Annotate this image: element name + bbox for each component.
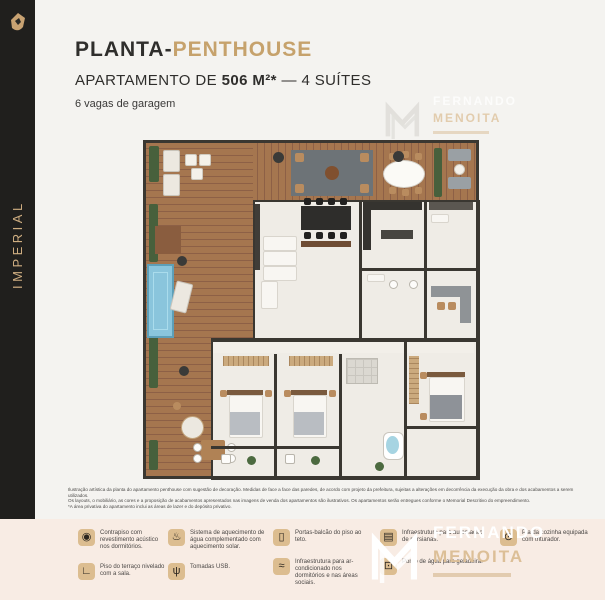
plan-outline	[143, 140, 479, 479]
watermark-name: FERNANDO	[433, 93, 517, 110]
feature-item: ≈ Infraestrutura para ar-condicionado no…	[273, 558, 373, 587]
usb-outlet-icon: ψ	[168, 563, 185, 580]
garage-info: 6 vagas de garagem	[75, 98, 175, 110]
floor-plan	[143, 140, 479, 479]
feature-item: ⊙ Pia da cozinha equipada com triturador…	[500, 529, 600, 546]
feature-text: Infraestrutura para ar-condicionado nos …	[295, 558, 373, 587]
brand-name-vertical: IMPERIAL	[0, 200, 35, 290]
feature-item: ♨ Sistema de aquecimento de água complem…	[168, 529, 270, 551]
feature-text: Contrapiso com revestimento acústico nos…	[100, 529, 166, 551]
level-floor-icon: ∟	[78, 563, 95, 580]
fridge-water-point-icon: ⊡	[380, 558, 397, 575]
watermark-top: FERNANDO MENOITA	[385, 93, 517, 144]
feature-item: ▯ Portas-balcão do piso ao teto.	[273, 529, 373, 546]
disclaimer-line: Os layouts, o mobiliário, as cores e a p…	[68, 498, 585, 504]
brochure-page: IMPERIAL PLANTA-PENTHOUSE APARTAMENTO DE…	[0, 0, 605, 600]
feature-item: ◉ Contrapiso com revestimento acústico n…	[78, 529, 166, 551]
air-conditioning-icon: ≈	[273, 558, 290, 575]
disclaimer: Ilustração artística da planta do aparta…	[68, 487, 585, 509]
disclaimer-line: *A área privativa do apartamento inclui …	[68, 504, 585, 510]
features-footer: ◉ Contrapiso com revestimento acústico n…	[0, 519, 605, 600]
feature-item: ⊡ Ponto de água para geladeira.	[380, 558, 485, 575]
floor-to-ceiling-door-icon: ▯	[273, 529, 290, 546]
feature-item: ▤ Infraestrutura para automação de persi…	[380, 529, 485, 546]
sink-disposal-icon: ⊙	[500, 529, 517, 546]
acoustic-floor-icon: ◉	[78, 529, 95, 546]
solar-water-heating-icon: ♨	[168, 529, 185, 546]
feature-text: Portas-balcão do piso ao teto.	[295, 529, 373, 544]
feature-text: Ponto de água para geladeira.	[402, 558, 483, 566]
disclaimer-line: Ilustração artística da planta do aparta…	[68, 487, 585, 498]
page-subtitle: APARTAMENTO DE 506 M²* — 4 SUÍTES	[75, 72, 371, 89]
feature-text: Tomadas USB.	[190, 563, 230, 571]
crest-icon	[8, 12, 28, 39]
sidebar: IMPERIAL	[0, 0, 35, 600]
feature-text: Pia da cozinha equipada com triturador.	[522, 529, 600, 544]
watermark-surname: MENOITA	[433, 110, 517, 127]
title-prefix: PLANTA-	[75, 38, 173, 61]
feature-text: Piso do terraço nivelado com a sala.	[100, 563, 166, 578]
area-value: 506 M²*	[222, 72, 277, 89]
watermark-tagline-bar	[433, 131, 489, 134]
monogram-m-icon	[385, 93, 425, 144]
title-highlight: PENTHOUSE	[173, 38, 313, 61]
feature-text: Infraestrutura para automação de persian…	[402, 529, 485, 544]
blinds-automation-icon: ▤	[380, 529, 397, 546]
feature-item: ψ Tomadas USB.	[168, 563, 270, 580]
feature-text: Sistema de aquecimento de água complemen…	[190, 529, 270, 551]
feature-item: ∟ Piso do terraço nivelado com a sala.	[78, 563, 166, 580]
page-title: PLANTA-PENTHOUSE	[75, 38, 312, 62]
